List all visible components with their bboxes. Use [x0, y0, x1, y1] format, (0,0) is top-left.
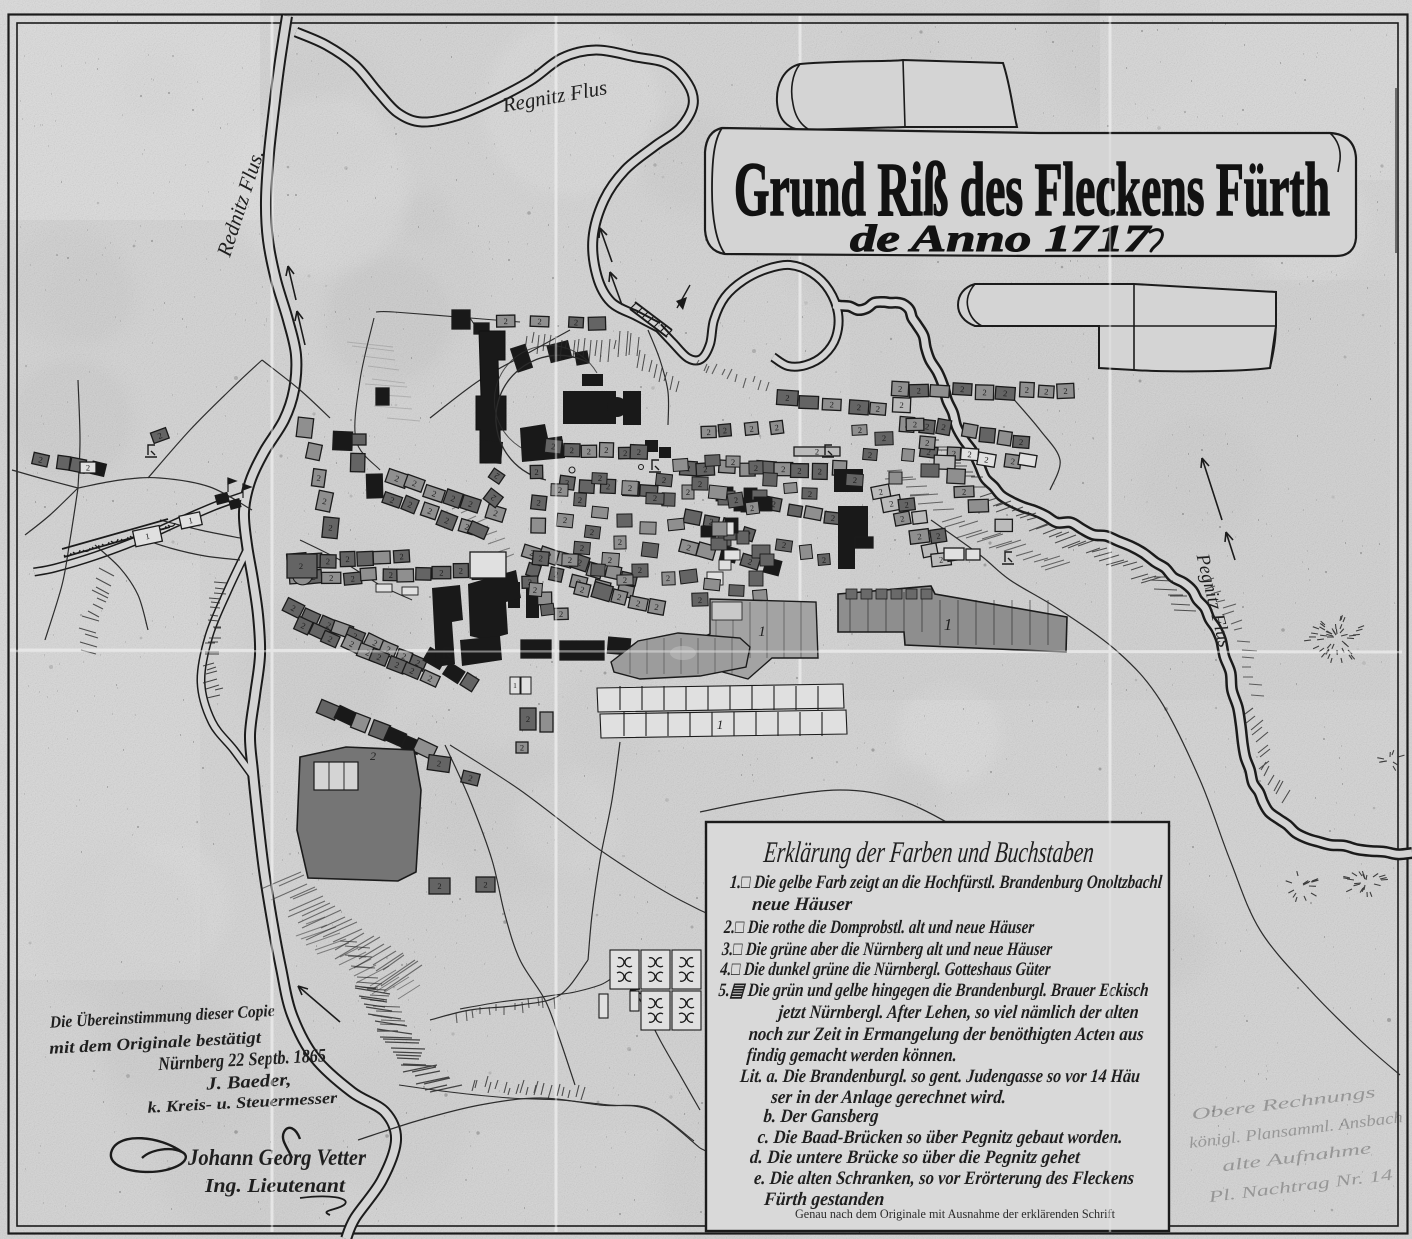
- svg-text:2: 2: [867, 450, 872, 460]
- svg-text:2: 2: [618, 537, 622, 547]
- svg-text:2: 2: [917, 386, 921, 396]
- svg-text:2: 2: [608, 555, 613, 565]
- svg-text:2: 2: [882, 433, 887, 443]
- svg-text:2: 2: [858, 425, 863, 435]
- svg-text:de Anno 1717: de Anno 1717: [850, 218, 1153, 260]
- svg-text:2: 2: [1019, 437, 1024, 447]
- svg-text:2: 2: [653, 493, 658, 503]
- svg-text:2: 2: [785, 393, 790, 403]
- svg-text:neue Häuser: neue Häuser: [751, 894, 853, 915]
- svg-text:b. Der Gansberg: b. Der Gansberg: [763, 1106, 880, 1127]
- svg-text:2: 2: [299, 561, 303, 571]
- svg-text:2: 2: [534, 467, 538, 477]
- svg-text:2: 2: [754, 463, 758, 473]
- svg-text:2: 2: [698, 479, 702, 489]
- svg-text:jetzt Nürnbergl. After Lehen,: jetzt Nürnbergl. After Lehen, so viel nä…: [775, 1002, 1139, 1023]
- svg-text:2: 2: [623, 575, 627, 585]
- svg-text:c. Die Baad-Brücken so über Pe: c. Die Baad-Brücken so über Pegnitz geba…: [757, 1127, 1124, 1148]
- svg-text:2.□ Die rothe die Domprobstl.: 2.□ Die rothe die Domprobstl. alt und ne…: [722, 917, 1035, 938]
- svg-text:ser in der Anlage gerechnet wi: ser in der Anlage gerechnet wird.: [769, 1087, 1007, 1108]
- svg-text:2: 2: [899, 400, 904, 410]
- svg-text:2: 2: [628, 483, 633, 493]
- svg-text:Erklärung der Farben und Buchs: Erklärung der Farben und Buchstaben: [762, 835, 1096, 869]
- svg-text:2: 2: [925, 438, 930, 448]
- svg-text:2: 2: [722, 425, 727, 435]
- svg-text:2: 2: [587, 446, 591, 456]
- svg-text:4.□ Die dunkel grüne die Nürnb: 4.□ Die dunkel grüne die Nürnbergl. Gott…: [719, 959, 1052, 980]
- svg-text:2: 2: [1044, 386, 1049, 396]
- svg-text:e. Die alten Schranken, so vor: e. Die alten Schranken, so vor Erörterun…: [753, 1168, 1135, 1189]
- svg-text:2: 2: [504, 316, 508, 326]
- svg-text:2: 2: [1003, 388, 1008, 398]
- svg-text:2: 2: [574, 317, 579, 327]
- svg-text:2: 2: [857, 402, 862, 412]
- svg-text:2: 2: [578, 495, 583, 505]
- svg-text:2: 2: [686, 487, 690, 497]
- svg-text:Genau nach dem Originale mit A: Genau nach dem Originale mit Ausnahme de…: [795, 1207, 1116, 1221]
- svg-text:2: 2: [568, 555, 573, 565]
- svg-text:2: 2: [558, 485, 563, 495]
- svg-text:noch zur Zeit in Ermangelung d: noch zur Zeit in Ermangelung der benöthi…: [748, 1024, 1145, 1045]
- svg-text:findig gemacht werden können.: findig gemacht werden können.: [746, 1045, 958, 1066]
- svg-text:2: 2: [698, 595, 703, 605]
- svg-text:2: 2: [982, 387, 986, 397]
- svg-text:d. Die untere Brücke so über d: d. Die untere Brücke so über die Pegnitz…: [749, 1147, 1081, 1168]
- svg-text:2: 2: [1063, 386, 1068, 396]
- svg-text:2: 2: [875, 404, 880, 414]
- svg-text:2: 2: [537, 316, 542, 326]
- svg-text:2: 2: [706, 427, 711, 437]
- svg-text:2: 2: [1025, 385, 1030, 395]
- svg-text:2: 2: [579, 543, 584, 553]
- svg-text:2: 2: [781, 464, 785, 474]
- svg-text:2: 2: [962, 487, 967, 497]
- svg-text:3.□ Die grüne aber die Nürnber: 3.□ Die grüne aber die Nürnberg alt und …: [720, 939, 1053, 960]
- svg-text:2: 2: [797, 466, 801, 476]
- svg-text:2: 2: [520, 743, 524, 753]
- svg-text:2: 2: [898, 384, 903, 394]
- svg-text:2: 2: [666, 573, 671, 583]
- svg-text:2: 2: [526, 714, 530, 724]
- svg-text:Ing. Lieutenant: Ing. Lieutenant: [204, 1175, 347, 1197]
- svg-text:2: 2: [638, 565, 642, 575]
- svg-text:2: 2: [538, 553, 543, 563]
- svg-text:2: 2: [604, 445, 609, 455]
- svg-text:2: 2: [853, 475, 858, 485]
- svg-text:2: 2: [623, 448, 627, 458]
- svg-text:2: 2: [815, 447, 819, 457]
- svg-text:2: 2: [829, 399, 834, 409]
- svg-text:2: 2: [967, 449, 972, 459]
- svg-text:2: 2: [345, 554, 350, 564]
- svg-text:2: 2: [598, 473, 603, 483]
- svg-text:2: 2: [326, 556, 330, 566]
- svg-text:2: 2: [532, 585, 537, 595]
- svg-text:2: 2: [86, 463, 90, 473]
- svg-text:1.□ Die gelbe Farb zeigt an di: 1.□ Die gelbe Farb zeigt an die Hochfürs…: [729, 872, 1163, 893]
- svg-text:2: 2: [960, 384, 965, 394]
- svg-text:2: 2: [370, 749, 376, 763]
- svg-text:2: 2: [637, 447, 642, 457]
- svg-text:5.▤ Die grün und gelbe hingege: 5.▤ Die grün und gelbe hingegen die Bran…: [718, 980, 1150, 1001]
- svg-text:Johann Georg Vetter: Johann Georg Vetter: [187, 1145, 367, 1170]
- svg-text:2: 2: [439, 568, 443, 578]
- svg-text:2: 2: [559, 609, 563, 619]
- svg-text:Lit. a. Die Brandenburgl. so g: Lit. a. Die Brandenburgl. so gent. Juden…: [738, 1066, 1141, 1087]
- svg-text:1: 1: [513, 681, 517, 690]
- svg-text:2: 2: [329, 573, 333, 583]
- svg-text:2: 2: [808, 489, 813, 499]
- svg-text:2: 2: [818, 466, 822, 476]
- svg-text:2: 2: [437, 881, 441, 891]
- svg-text:2: 2: [483, 880, 487, 890]
- svg-text:1: 1: [944, 615, 953, 634]
- svg-text:1: 1: [758, 624, 766, 640]
- svg-text:2: 2: [570, 445, 574, 455]
- svg-text:2: 2: [399, 551, 404, 561]
- svg-text:2: 2: [731, 457, 735, 467]
- svg-text:2: 2: [821, 555, 826, 565]
- svg-text:2: 2: [459, 566, 463, 576]
- svg-text:2: 2: [913, 419, 917, 429]
- svg-text:2: 2: [389, 570, 393, 580]
- svg-text:1: 1: [717, 717, 724, 732]
